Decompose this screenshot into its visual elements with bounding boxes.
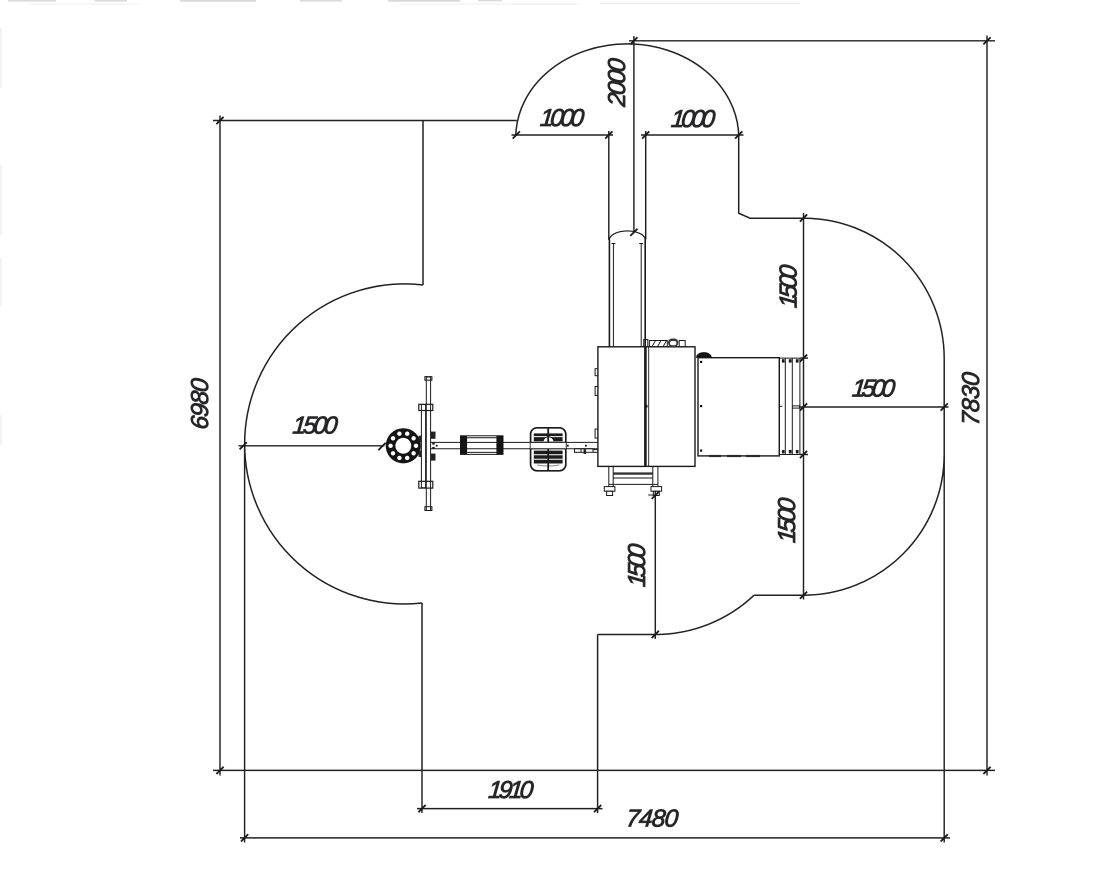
svg-text:1910: 1910 [487, 777, 535, 804]
svg-text:2000: 2000 [604, 57, 631, 109]
svg-text:1500: 1500 [291, 413, 339, 440]
svg-text:7830: 7830 [958, 371, 985, 427]
svg-text:1000: 1000 [670, 106, 717, 133]
svg-text:1500: 1500 [851, 375, 897, 402]
svg-text:6980: 6980 [187, 377, 214, 431]
svg-text:1500: 1500 [775, 263, 802, 309]
svg-text:1000: 1000 [539, 105, 586, 132]
svg-text:7480: 7480 [625, 806, 680, 833]
svg-text:1500: 1500 [774, 496, 801, 544]
svg-text:1500: 1500 [624, 542, 651, 588]
